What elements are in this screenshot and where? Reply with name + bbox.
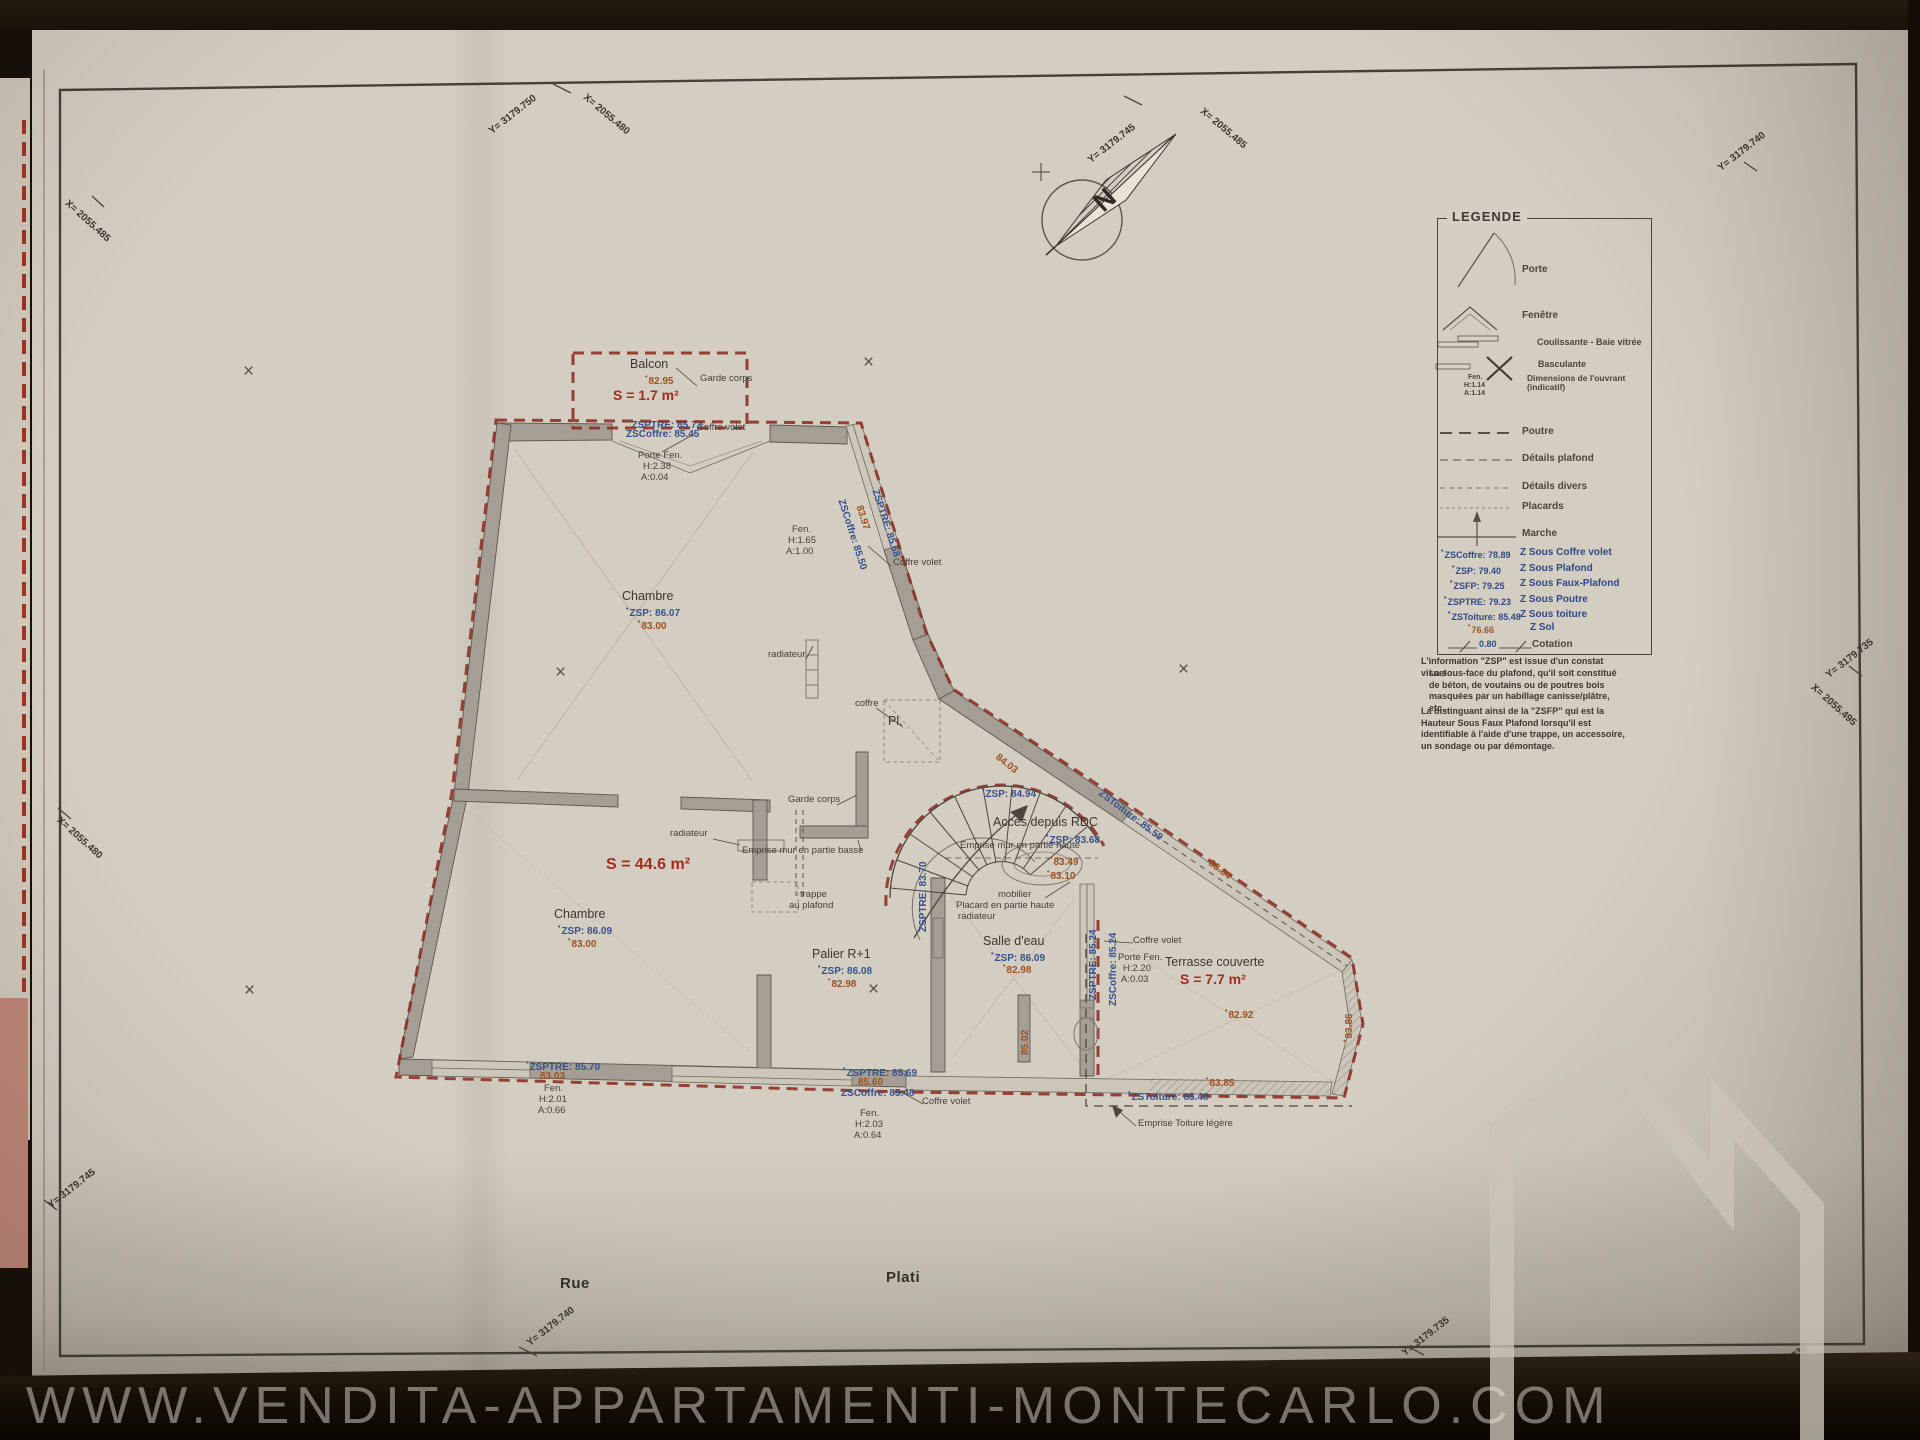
photographed-floor-plan: X= 2055.485 Y= 3179.750 X= 2055.480 Y= 3… — [0, 0, 1920, 1440]
watermark-url: WWW.VENDITA-APPARTAMENTI-MONTECARLO.COM — [26, 1376, 1612, 1436]
photo-vignette — [0, 0, 1920, 1440]
photo-dark-edge-right — [1908, 0, 1920, 1440]
photo-dark-edge-top — [0, 0, 1920, 30]
